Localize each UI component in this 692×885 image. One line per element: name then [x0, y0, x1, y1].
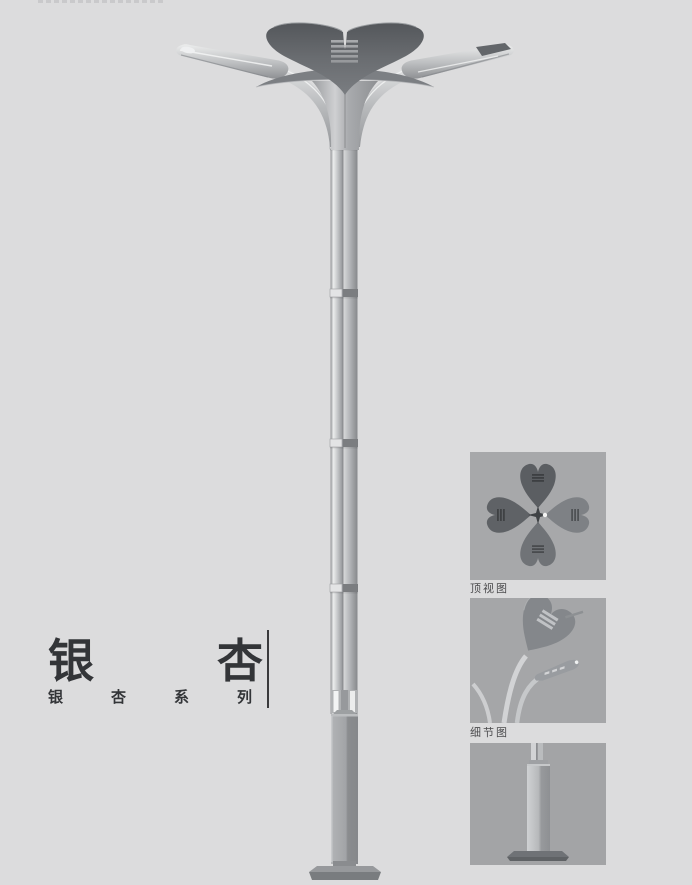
- catalog-page: 银 杏 银 杏 系 列: [0, 0, 692, 885]
- top-view-image: [470, 452, 606, 580]
- lamp-base: [309, 714, 381, 880]
- subtitle-char: 系: [174, 690, 189, 705]
- title-char: 银: [48, 638, 94, 684]
- top-view-panel: [470, 452, 606, 580]
- top-view-label: 顶视图: [470, 581, 509, 597]
- lamp-pole: [330, 106, 358, 716]
- detail-view-image: [470, 598, 606, 723]
- subtitle-char: 杏: [111, 690, 126, 705]
- right-lamp-head: [402, 43, 514, 79]
- base-view-panel: [470, 743, 606, 865]
- base-view-image: [470, 743, 606, 865]
- ginkgo-crown: [266, 23, 424, 95]
- subtitle-char: 银: [48, 690, 63, 705]
- left-lamp-head: [176, 44, 288, 78]
- base-view-column: [527, 764, 550, 854]
- base-view-plate: [507, 851, 569, 861]
- title-char: 杏: [217, 638, 263, 684]
- series-subtitle: 银 杏 系 列: [48, 690, 252, 705]
- detail-view-panel: [470, 598, 606, 723]
- series-title: 银 杏: [48, 638, 263, 684]
- title-divider-line: [267, 630, 269, 708]
- detail-view-label: 细节图: [470, 725, 509, 741]
- pole-base-fork: [331, 690, 358, 716]
- subtitle-char: 列: [237, 690, 252, 705]
